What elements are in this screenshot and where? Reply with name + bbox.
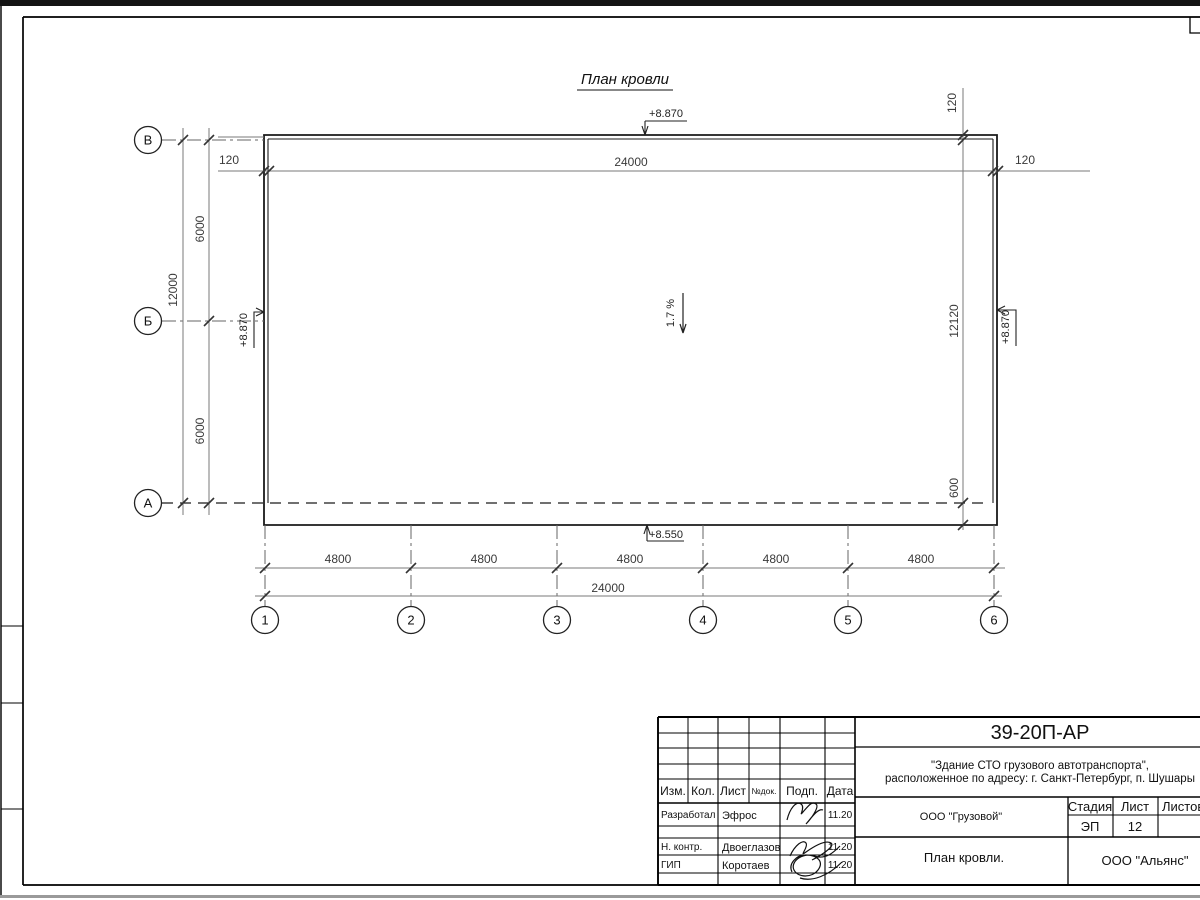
page-title: План кровли	[581, 71, 670, 88]
axis-col-5: 5	[844, 613, 851, 628]
dim-4800-1: 4800	[325, 552, 352, 566]
tb-role-2: Н. контр.	[661, 842, 702, 853]
elevation-left: +8.870	[238, 313, 250, 347]
tb-role-1: Разработал	[661, 809, 716, 821]
dim-top-24000: 24000	[614, 155, 648, 169]
axis-col-3: 3	[553, 613, 560, 628]
drawing-frame	[1, 17, 1200, 885]
tb-sheet-label: Лист	[1121, 799, 1149, 814]
dimension-ticks	[178, 130, 1003, 601]
axis-row-b: Б	[144, 314, 153, 329]
dim-4800-3: 4800	[617, 552, 644, 566]
roof-plan-canvas: План кровли 24000 24000 120 120 4800 480…	[0, 0, 1200, 900]
tb-name-1: Эфрос	[722, 810, 757, 822]
roof-outline	[162, 135, 997, 525]
tb-stage-value: ЭП	[1081, 819, 1100, 834]
elevation-leaders	[254, 121, 1016, 541]
tb-header-ndok: №док.	[752, 786, 777, 796]
tb-project-line1: "Здание СТО грузового автотранспорта",	[931, 760, 1149, 772]
drawing-sheet: План кровли 24000 24000 120 120 4800 480…	[0, 0, 1200, 900]
dim-top-right-120: 120	[1015, 153, 1035, 167]
elevation-right: +8.870	[1000, 310, 1012, 344]
dim-right-12120: 12120	[947, 304, 961, 338]
tb-doc-number: 39-20П-АР	[991, 722, 1090, 744]
axis-row-a: А	[144, 496, 153, 511]
dim-4800-4: 4800	[763, 552, 790, 566]
dim-4800-5: 4800	[908, 552, 935, 566]
tb-stage-label: Стадия	[1068, 799, 1112, 814]
axis-col-4: 4	[699, 613, 706, 628]
dim-top-left-120: 120	[219, 153, 239, 167]
elevation-bottom: +8.550	[649, 529, 683, 541]
axis-row-v: В	[144, 133, 153, 148]
tb-org: ООО "Грузовой"	[920, 811, 1002, 823]
tb-date-3: 11.20	[828, 860, 853, 871]
tb-header-list: Лист	[720, 784, 747, 798]
tb-date-1: 11.20	[828, 810, 853, 821]
tb-company: ООО "Альянс"	[1102, 853, 1189, 868]
elevation-top: +8.870	[649, 108, 683, 120]
axis-lines	[162, 140, 994, 606]
tb-header-podp: Подп.	[786, 784, 818, 798]
dim-left-6000-lower: 6000	[193, 417, 207, 444]
dim-left-12000: 12000	[166, 273, 180, 307]
dim-bottom-24000: 24000	[591, 581, 625, 595]
tb-date-2: 11.20	[828, 842, 853, 853]
tb-name-2: Двоеглазов	[722, 842, 781, 854]
axis-col-6: 6	[990, 613, 997, 628]
tb-sheet-value: 12	[1128, 819, 1142, 834]
dim-right-600: 600	[947, 478, 961, 498]
tb-header-izm: Изм.	[660, 784, 686, 798]
tb-sheets-label: Листов	[1162, 799, 1200, 814]
slope-label: 1.7 %	[665, 299, 677, 327]
slope-arrow	[680, 293, 686, 333]
dim-left-6000-upper: 6000	[193, 215, 207, 242]
tb-project-line2: расположенное по адресу: г. Санкт-Петерб…	[885, 773, 1195, 785]
tb-header-data: Дата	[827, 784, 854, 798]
axis-col-1: 1	[261, 613, 268, 628]
tb-header-kol: Кол.	[691, 784, 715, 798]
dim-right-vert-120: 120	[945, 93, 959, 113]
axis-col-2: 2	[407, 613, 414, 628]
tb-drawing-title: План кровли.	[924, 850, 1004, 865]
tb-role-3: ГИП	[661, 860, 681, 871]
tb-name-3: Коротаев	[722, 860, 770, 872]
dim-4800-2: 4800	[471, 552, 498, 566]
